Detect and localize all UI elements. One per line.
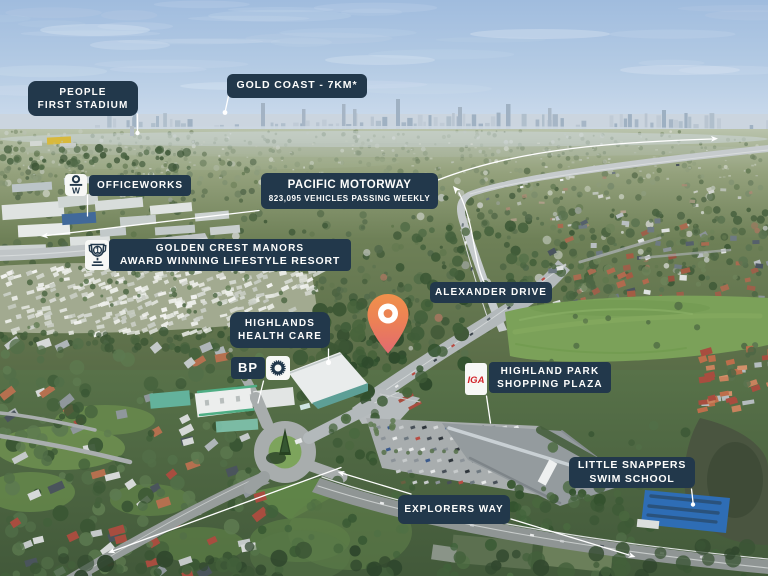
svg-text:1: 1 [95,246,100,255]
svg-text:W: W [72,186,81,196]
svg-text:IGA: IGA [468,375,485,386]
